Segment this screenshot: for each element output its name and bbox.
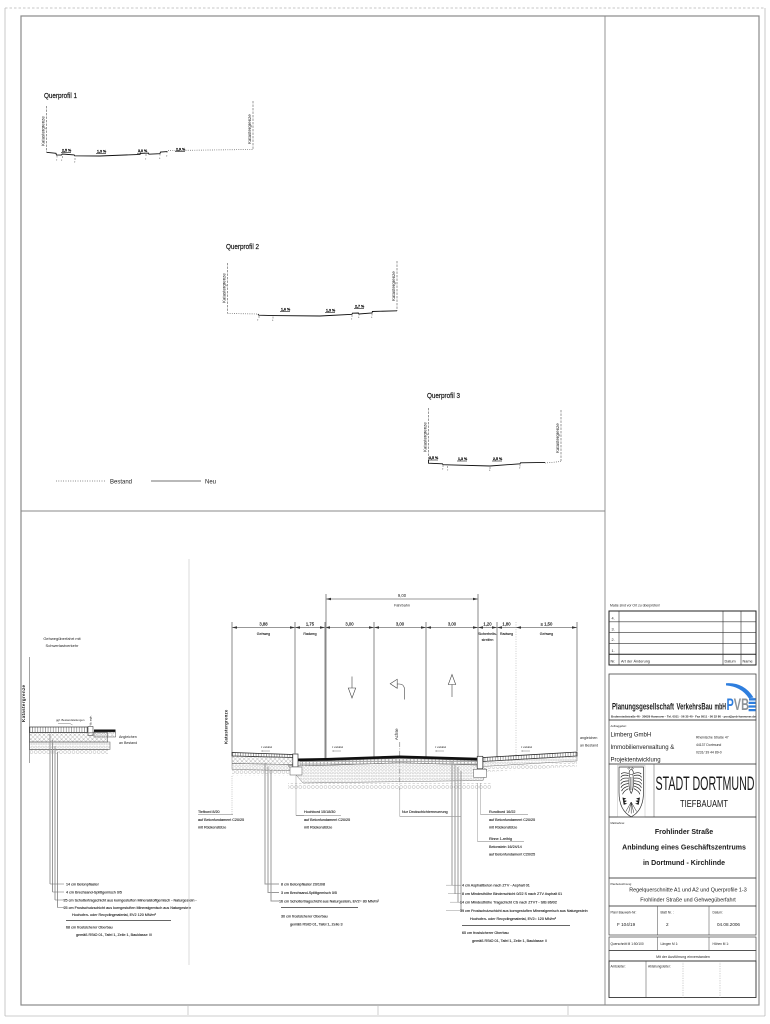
svg-text:39 cm Frostschutzschicht aus k: 39 cm Frostschutzschicht aus korngestuft… [460, 909, 588, 913]
svg-text:Datum:: Datum: [713, 911, 723, 915]
svg-text:Hochofen- oder Recyclingmateri: Hochofen- oder Recyclingmaterial, EV2 12… [72, 913, 157, 917]
svg-text:Auftraggeber:: Auftraggeber: [611, 724, 628, 728]
svg-text:gemäß RStO 01, Tafel 1, Zeile: gemäß RStO 01, Tafel 1, Zeile 1, Bauklas… [472, 939, 547, 943]
svg-text:Katastergrenze: Katastergrenze [222, 273, 227, 303]
svg-text:Rundbord 16/22: Rundbord 16/22 [489, 810, 515, 814]
svg-text:Anbindung eines Geschäftszentr: Anbindung eines Geschäftszentrums [622, 845, 746, 852]
svg-text:25 cm Frostschutzschicht aus k: 25 cm Frostschutzschicht aus korngestuft… [64, 906, 192, 910]
svg-text:Katastergrenze: Katastergrenze [391, 271, 396, 301]
svg-text:an Bestand: an Bestand [580, 744, 598, 748]
svg-text:Abteilungsleiter:: Abteilungsleiter: [648, 965, 671, 969]
svg-text:Nr.: Nr. [611, 660, 616, 664]
svg-text:Immobilienverwaltung &: Immobilienverwaltung & [611, 745, 675, 751]
svg-text:3,0 %: 3,0 % [138, 149, 148, 153]
svg-text:Achse: Achse [394, 728, 399, 740]
svg-text:Vb. asph.: Vb. asph. [90, 715, 93, 725]
svg-text:an Bestand: an Bestand [119, 741, 137, 745]
svg-text:Sicherheits-: Sicherheits- [478, 632, 498, 636]
svg-text:44137 Dortmund: 44137 Dortmund [696, 743, 721, 747]
svg-text:Schwerlastverkehr: Schwerlastverkehr [46, 643, 80, 648]
svg-text:z variabel: z variabel [435, 745, 447, 749]
svg-text:25 cm Schottertragschicht aus: 25 cm Schottertragschicht aus korngestuf… [64, 899, 198, 903]
svg-text:Katastergrenze: Katastergrenze [21, 684, 26, 722]
svg-text:z variabel: z variabel [521, 745, 533, 749]
svg-text:Bodenstedtstraße 46 · 30629 Ha: Bodenstedtstraße 46 · 30629 Hannover · T… [611, 715, 756, 719]
svg-text:mit Rückenstütze: mit Rückenstütze [304, 826, 332, 830]
svg-text:Katastergrenze: Katastergrenze [41, 116, 46, 146]
svg-text:Hochofen- oder Recyclingmateri: Hochofen- oder Recyclingmaterial, EV2= 1… [470, 917, 557, 921]
svg-text:4.: 4. [612, 617, 615, 621]
svg-text:Nur Deckschichterneuerung: Nur Deckschichterneuerung [402, 810, 448, 814]
svg-text:Hochbord 15/18/30: Hochbord 15/18/30 [304, 810, 335, 814]
svg-text:4 cm Asphaltbeton nach ZTV - A: 4 cm Asphaltbeton nach ZTV - Asphalt 01 [462, 884, 530, 888]
svg-text:auf Betonfundament C20/25: auf Betonfundament C20/25 [489, 853, 535, 857]
svg-text:gemäß RStO 01, Tafel 1, Zeile: gemäß RStO 01, Tafel 1, Zeile 1, Bauklas… [76, 933, 152, 937]
svg-text:30 cm frostsicherer Oberbau: 30 cm frostsicherer Oberbau [281, 915, 328, 919]
svg-text:8 cm Betonpflaster 20/10/8: 8 cm Betonpflaster 20/10/8 [281, 883, 325, 887]
svg-text:Angleichen: Angleichen [119, 735, 137, 739]
svg-text:4 cm Brechsand-Splittgemisch 0: 4 cm Brechsand-Splittgemisch 0/5 [66, 891, 122, 895]
svg-text:mbH: mbH [715, 702, 727, 712]
svg-text:Name: Name [743, 660, 753, 664]
svg-text:16 cm Schottertragschicht aus: 16 cm Schottertragschicht aus Naturgeste… [279, 900, 380, 904]
svg-text:Projektentwicklung: Projektentwicklung [611, 758, 661, 764]
svg-text:≥ 1,50: ≥ 1,50 [541, 622, 553, 627]
svg-text:1.: 1. [612, 649, 615, 653]
svg-text:Radweg: Radweg [303, 632, 316, 636]
svg-text:PVB: PVB [727, 695, 750, 714]
svg-text:z variabel: z variabel [261, 745, 273, 749]
svg-text:Plan/ Bauwerk-Nr:: Plan/ Bauwerk-Nr: [611, 911, 637, 915]
svg-text:STADT DORTMUND: STADT DORTMUND [656, 774, 755, 795]
svg-text:auf Betonfundament C20/25: auf Betonfundament C20/25 [198, 818, 244, 822]
svg-text:Katastergrenze: Katastergrenze [247, 114, 252, 144]
svg-text:Gehweg: Gehweg [540, 632, 553, 636]
svg-text:14 cm Mindesthöhe Tragschicht: 14 cm Mindesthöhe Tragschicht CS nach ZT… [460, 901, 557, 905]
svg-text:2,5 %: 2,5 % [493, 457, 503, 461]
svg-text:Querprofil 1: Querprofil 1 [44, 91, 77, 100]
svg-text:1,3 %: 1,3 % [458, 457, 468, 461]
svg-text:angleichen: angleichen [580, 736, 597, 740]
svg-text:Maße sind vor Ort zu überprüfe: Maße sind vor Ort zu überprüfen! [610, 604, 660, 608]
svg-text:Datum: Datum [725, 660, 736, 664]
svg-text:Gehweg: Gehweg [257, 632, 270, 636]
svg-text:Querprofil 2: Querprofil 2 [226, 242, 259, 251]
svg-text:in Dortmund - Kirchlinde: in Dortmund - Kirchlinde [643, 860, 725, 867]
svg-text:Querschnitt M 1:50/100: Querschnitt M 1:50/100 [611, 942, 644, 946]
svg-text:Rheinische Straße 47: Rheinische Straße 47 [696, 736, 729, 740]
svg-text:65 cm frostsicherer Oberbau: 65 cm frostsicherer Oberbau [462, 931, 509, 935]
svg-text:0231/ 39 44 89-0: 0231/ 39 44 89-0 [696, 751, 722, 755]
svg-text:mit Rückenstütze: mit Rückenstütze [489, 826, 517, 830]
svg-text:TIEFBAUAMT: TIEFBAUAMT [680, 798, 728, 810]
svg-text:04.08.2006: 04.08.2006 [717, 922, 740, 927]
svg-text:Amtsleiter:: Amtsleiter: [611, 965, 626, 969]
svg-text:2,9 %: 2,9 % [176, 148, 186, 152]
svg-text:8 cm Mindesthöhe Binderschicht: 8 cm Mindesthöhe Binderschicht 0/22 S na… [462, 892, 562, 896]
svg-text:Mit der Ausführung einverstand: Mit der Ausführung einverstanden [656, 955, 710, 959]
svg-text:Betonstein 16/24/14: Betonstein 16/24/14 [489, 845, 522, 849]
svg-text:Regelquerschnitte A1 und A2 un: Regelquerschnitte A1 und A2 und Querprof… [629, 888, 746, 894]
svg-text:Rinne 1-reihig: Rinne 1-reihig [489, 837, 512, 841]
svg-text:Radweg: Radweg [500, 632, 513, 636]
svg-text:ggf. Bestandsleitungen: ggf. Bestandsleitungen [56, 718, 85, 722]
svg-text:Katastergrenze: Katastergrenze [224, 709, 229, 744]
svg-text:Neu: Neu [205, 480, 216, 486]
svg-text:auf Betonfundament C20/25: auf Betonfundament C20/25 [304, 818, 350, 822]
svg-text:Frohlinder Straße: Frohlinder Straße [655, 829, 713, 836]
svg-text:Gehwegüberfahrt mit: Gehwegüberfahrt mit [43, 636, 81, 641]
svg-text:gemäß RStO 01, Tafel 1, Zeile: gemäß RStO 01, Tafel 1, Zeile 3 [290, 923, 343, 927]
svg-text:Fahrbahn: Fahrbahn [394, 604, 410, 608]
svg-text:Planungsgesellschaft: Planungsgesellschaft [612, 702, 674, 712]
svg-text:z variabel: z variabel [332, 745, 344, 749]
svg-text:VerkehrsBau: VerkehrsBau [677, 702, 713, 712]
svg-text:Frohlinder Straße und Gehwegüb: Frohlinder Straße und Gehwegüberfahrt [640, 898, 736, 904]
svg-text:2,7 %: 2,7 % [355, 305, 365, 309]
svg-text:2,5 %: 2,5 % [62, 149, 72, 153]
svg-text:auf Betonfundament C20/25: auf Betonfundament C20/25 [489, 818, 535, 822]
svg-text:1,3 %: 1,3 % [97, 150, 107, 154]
svg-text:Maßnahme:: Maßnahme: [611, 821, 626, 825]
svg-text:3 cm Brechsand-Splittgemisch 0: 3 cm Brechsand-Splittgemisch 0/5 [281, 891, 337, 895]
svg-text:1,75: 1,75 [306, 622, 315, 627]
svg-text:3,00: 3,00 [448, 622, 457, 627]
svg-text:Blatt Nr. :: Blatt Nr. : [661, 911, 674, 915]
svg-text:Tiefbord 8/20: Tiefbord 8/20 [198, 810, 220, 814]
svg-text:1,6 %: 1,6 % [281, 308, 291, 312]
svg-text:Längen M 1:: Längen M 1: [661, 942, 679, 946]
svg-text:Katastergrenze: Katastergrenze [555, 423, 560, 453]
svg-text:2: 2 [666, 922, 669, 927]
svg-text:2.: 2. [612, 638, 615, 642]
svg-text:3.: 3. [612, 627, 615, 631]
svg-text:streifen: streifen [482, 638, 494, 642]
svg-text:3,00: 3,00 [396, 622, 405, 627]
svg-text:Katastergrenze: Katastergrenze [423, 422, 428, 452]
svg-text:Planbezeichnung:: Planbezeichnung: [611, 882, 633, 886]
svg-text:Höhen M 1:: Höhen M 1: [713, 942, 730, 946]
svg-text:Limberg GmbH: Limberg GmbH [611, 733, 652, 739]
svg-text:Querprofil 3: Querprofil 3 [427, 391, 460, 400]
svg-text:Bestand: Bestand [110, 480, 132, 486]
svg-text:1,3 %: 1,3 % [326, 309, 336, 313]
svg-text:mit Rückenstütze: mit Rückenstütze [198, 826, 226, 830]
svg-text:1,80: 1,80 [502, 622, 511, 627]
svg-text:1,20: 1,20 [483, 622, 492, 627]
svg-text:3,00: 3,00 [345, 622, 354, 627]
svg-text:3,88: 3,88 [259, 622, 268, 627]
svg-text:F 104/19: F 104/19 [617, 922, 636, 927]
svg-text:9,00: 9,00 [398, 593, 407, 598]
svg-text:3,5 %: 3,5 % [429, 456, 439, 460]
svg-text:68 cm frostsicherer Oberbau: 68 cm frostsicherer Oberbau [66, 926, 113, 930]
svg-text:Art der Änderung: Art der Änderung [621, 660, 650, 664]
svg-text:14 cm Betonpflaster: 14 cm Betonpflaster [66, 883, 100, 887]
